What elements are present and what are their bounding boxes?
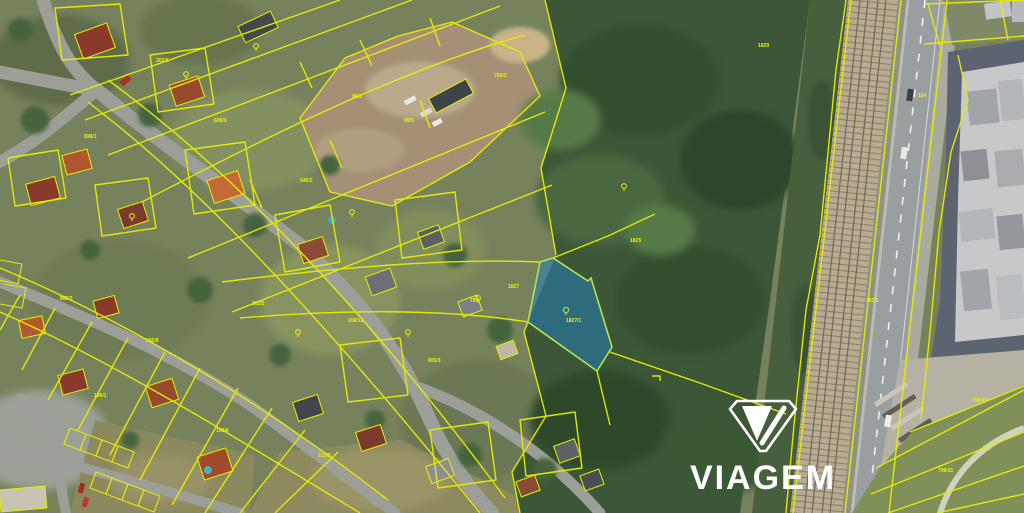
parcel-number-label: 595/8 <box>146 338 159 344</box>
parcel-number-label: 599/1 <box>84 134 97 140</box>
parcel-number-label: 798/22 <box>972 398 988 404</box>
map-viewport: 302/5599/1608/3302/2646/2208/12595/8186/… <box>0 0 1024 513</box>
parcel-number-label: 96/1 <box>352 94 362 100</box>
viagem-logo-text: VIAGEM <box>690 459 836 497</box>
parcel-number-label: 798/31 <box>938 468 954 474</box>
parcel-number-label: 605/3 <box>428 358 441 364</box>
parcel-number-label: 1827/1 <box>566 318 582 324</box>
parcel-number-label: 885/2 <box>60 296 73 302</box>
parcel-number-label: 186/1 <box>94 393 107 399</box>
parcel-number-label: 213/5 <box>318 453 331 459</box>
pool <box>204 466 212 474</box>
parcel-number-label: 1829 <box>758 43 769 49</box>
parcel-number-label: 608/3 <box>214 118 227 124</box>
parcel-number-label: 208/12 <box>348 318 364 324</box>
parcel-number-label: 184 <box>918 93 927 99</box>
parcel-number-label: 646/2 <box>300 178 313 184</box>
parcel-number-label: 302/5 <box>156 58 169 64</box>
parcel-number-label: 98/5 <box>404 118 414 124</box>
parcel-number-label: 183/1 <box>866 298 879 304</box>
parcel-number-label: 787 <box>470 298 479 304</box>
map-canvas[interactable]: 302/5599/1608/3302/2646/2208/12595/8186/… <box>0 0 1024 513</box>
parcel-number-label: 302/2 <box>252 301 265 307</box>
parcel-number-label: 760/2 <box>494 73 507 79</box>
parcel-number-label: 1825 <box>630 238 641 244</box>
parcel-number-label: 199/4 <box>216 428 229 434</box>
parcel-number-label: 1827 <box>508 284 519 290</box>
